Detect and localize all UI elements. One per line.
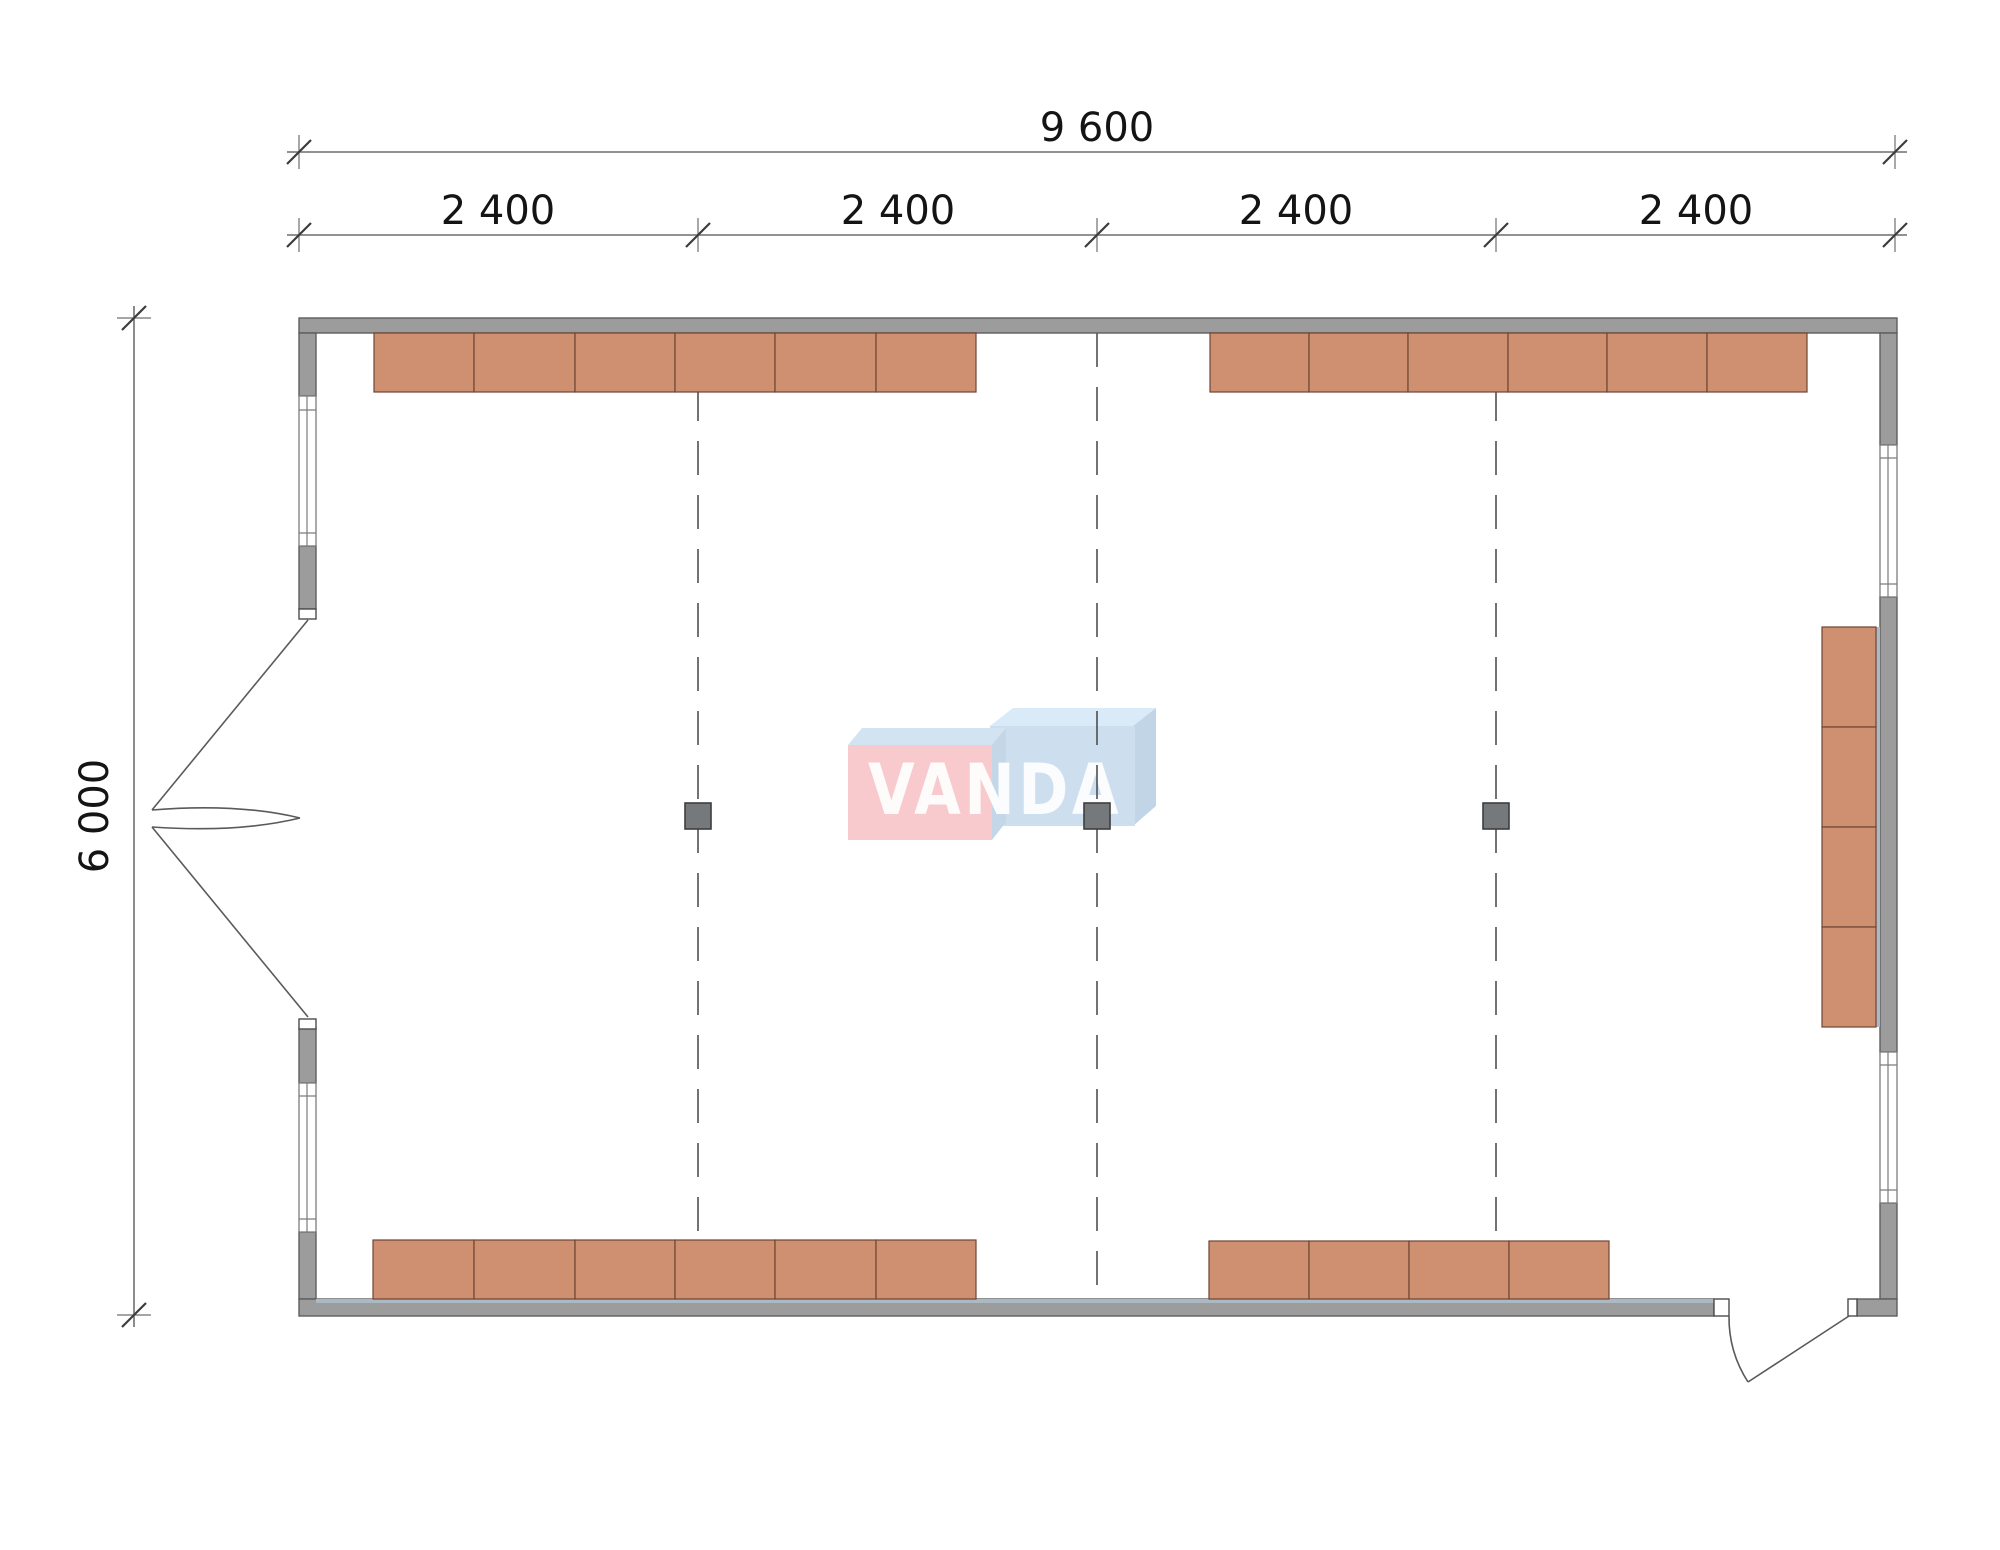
shelf-block (1822, 727, 1876, 827)
desk-block (575, 333, 675, 392)
desk-block (474, 1240, 575, 1299)
dimension-label-bay-2: 2 400 (841, 188, 956, 234)
right-window-lower (1880, 1052, 1897, 1203)
desk-block (675, 333, 775, 392)
door-jamb (299, 1019, 316, 1029)
shelf-block (1822, 827, 1876, 927)
left-window-lower (299, 1083, 316, 1232)
desk-block (373, 1240, 474, 1299)
desk-row-bottom-right (1209, 1241, 1609, 1299)
desk-block (374, 333, 474, 392)
door-swing-arc (152, 818, 300, 829)
right-wall-segment (1880, 1203, 1897, 1299)
logo-blue-box-top-face (990, 708, 1156, 726)
door-jamb (1714, 1299, 1729, 1316)
desk-block (675, 1240, 775, 1299)
dimension-bays: 2 400 2 400 2 400 2 400 (287, 188, 1907, 252)
logo-blue-box-side-face (1133, 708, 1156, 826)
shelf-block (1822, 927, 1876, 1027)
right-window-upper (1880, 445, 1897, 597)
door-jamb (299, 609, 316, 619)
dimension-label-overall-height: 6 000 (72, 759, 118, 874)
door-leaf (152, 827, 308, 1017)
door-jamb (1848, 1299, 1857, 1316)
column (1483, 803, 1509, 829)
desk-block (1409, 1241, 1509, 1299)
desk-block (1707, 333, 1807, 392)
door-leaf (1748, 1316, 1849, 1382)
desk-row-bottom-left (373, 1240, 976, 1299)
structural-columns (685, 803, 1509, 829)
door-swing-arc (152, 808, 300, 818)
desk-block (775, 333, 876, 392)
right-wall-segment (1880, 597, 1897, 1052)
desk-block (1309, 333, 1408, 392)
dimension-label-bay-1: 2 400 (441, 188, 556, 234)
desk-block (1309, 1241, 1409, 1299)
desk-block (1209, 1241, 1309, 1299)
desk-block (876, 1240, 976, 1299)
shelf-stack-right-wall (1822, 627, 1876, 1027)
desk-block (1607, 333, 1707, 392)
desk-block (1508, 333, 1607, 392)
bottom-single-door (1714, 1299, 1857, 1382)
logo-pink-box-top-face (848, 728, 1006, 745)
left-wall-segment (299, 546, 316, 609)
left-window-upper (299, 396, 316, 546)
desk-row-top-left (374, 333, 976, 392)
dimension-label-bay-3: 2 400 (1239, 188, 1354, 234)
floor-plan-canvas: VANDA (0, 0, 2000, 1550)
dimension-overall-height: 6 000 (72, 306, 151, 1327)
desk-block (575, 1240, 675, 1299)
bottom-wall-segment (1857, 1299, 1897, 1316)
shelf-block (1822, 627, 1876, 727)
top-wall (299, 318, 1897, 333)
left-wall-segment (299, 1028, 316, 1083)
column (685, 803, 711, 829)
left-double-door (152, 609, 316, 1029)
desk-block (1509, 1241, 1609, 1299)
desk-block (775, 1240, 876, 1299)
column (1084, 803, 1110, 829)
desk-block (876, 333, 976, 392)
desk-block (1408, 333, 1508, 392)
desk-block (474, 333, 575, 392)
dimension-overall-width: 9 600 (287, 105, 1907, 169)
dimension-label-overall-width: 9 600 (1040, 105, 1155, 151)
right-wall-segment (1880, 333, 1897, 445)
dimension-label-bay-4: 2 400 (1639, 188, 1754, 234)
desk-block (1210, 333, 1309, 392)
left-wall-segment (299, 333, 316, 396)
desk-row-top-right (1210, 333, 1807, 392)
left-wall-segment (299, 1232, 316, 1299)
door-leaf (152, 620, 308, 810)
door-swing-arc (1729, 1316, 1748, 1382)
